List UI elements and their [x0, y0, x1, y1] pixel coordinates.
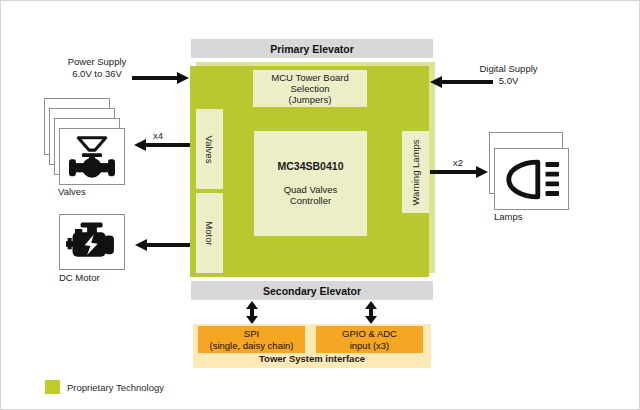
legend-label: Proprietary Technology [67, 382, 164, 393]
gpio-line1: GPIO & ADC [342, 328, 397, 340]
primary-elevator-label: Primary Elevator [270, 43, 353, 55]
legend-color-swatch [45, 380, 60, 394]
block-diagram-canvas: Primary Elevator MCU Tower Board Selecti… [0, 0, 640, 410]
power-supply-arrow [132, 72, 189, 84]
secondary-elevator-bar: Secondary Elevator [191, 281, 433, 300]
valve-icon [69, 135, 115, 179]
gpio-line2: input (x3) [350, 340, 390, 352]
part-desc-line1: Quad Valves [284, 184, 338, 195]
warning-lamps-port-box: Warning Lamps [402, 131, 429, 213]
digital-supply-arrow [430, 76, 493, 88]
primary-elevator-bar: Primary Elevator [191, 39, 433, 58]
valves-arrow [134, 139, 190, 151]
motor-arrow [135, 239, 190, 251]
warning-lamps-port-label: Warning Lamps [410, 139, 421, 205]
motor-port-label: Motor [204, 221, 215, 245]
gpio-double-arrow [365, 301, 377, 324]
motor-port-box: Motor [196, 193, 223, 273]
lamp-card-front [494, 148, 569, 210]
tower-system-interface-label: Tower System interface [259, 353, 365, 364]
controller-box: MC34SB0410 Quad Valves Controller [254, 131, 367, 236]
mcu-box-line3: (Jumpers) [289, 94, 332, 105]
digital-supply-line1: Digital Supply [456, 63, 561, 75]
valves-card-label: Valves [58, 186, 86, 198]
mcu-box-line2: Selection [290, 83, 329, 94]
power-supply-line1: Power Supply [41, 56, 153, 68]
spi-line2: (single, daisy chain) [210, 340, 294, 352]
valve-card-front [59, 128, 125, 185]
dc-motor-card [59, 214, 125, 270]
dc-motor-label: DC Motor [59, 272, 100, 284]
tower-board: MCU Tower Board Selection (Jumpers) Valv… [190, 66, 429, 277]
valves-port-box: Valves [196, 109, 223, 189]
mcu-selection-box: MCU Tower Board Selection (Jumpers) [253, 70, 367, 107]
part-desc-line2: Controller [290, 195, 331, 206]
spi-double-arrow [246, 301, 258, 324]
lamps-card-label: Lamps [494, 211, 523, 223]
headlamp-icon [503, 157, 561, 202]
spi-box: SPI (single, daisy chain) [198, 326, 305, 353]
spi-line1: SPI [244, 328, 259, 340]
part-number: MC34SB0410 [278, 161, 344, 172]
gpio-adc-box: GPIO & ADC input (x3) [316, 326, 423, 353]
mcu-box-line1: MCU Tower Board [271, 72, 348, 83]
secondary-elevator-label: Secondary Elevator [263, 285, 361, 297]
engine-icon [66, 222, 118, 262]
lamps-arrow [430, 166, 488, 178]
valves-port-label: Valves [204, 135, 215, 163]
